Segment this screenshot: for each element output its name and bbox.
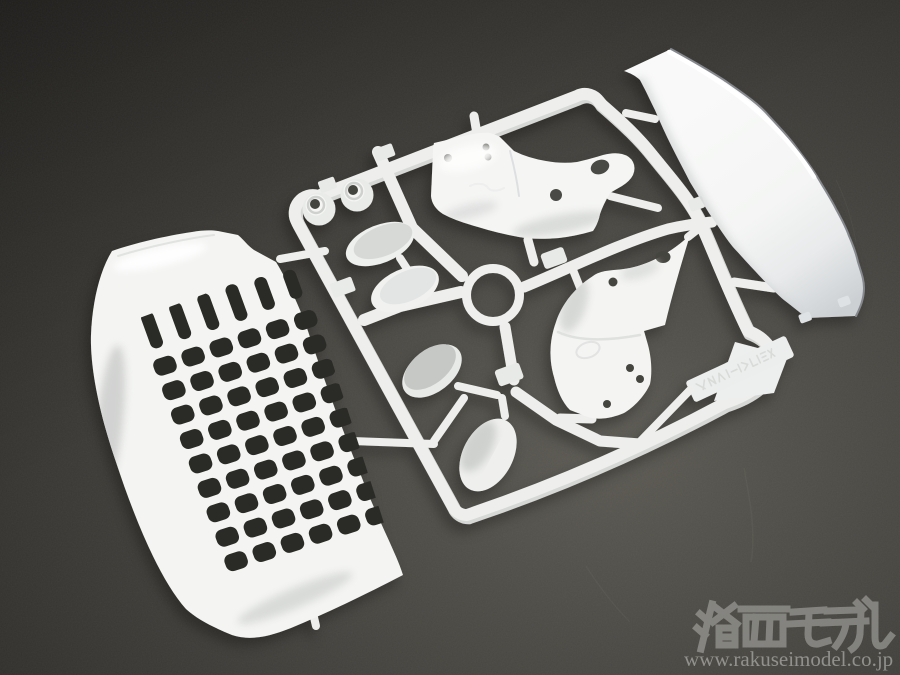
svg-text:www.rakuseimodel.co.jp: www.rakuseimodel.co.jp [684, 647, 893, 671]
